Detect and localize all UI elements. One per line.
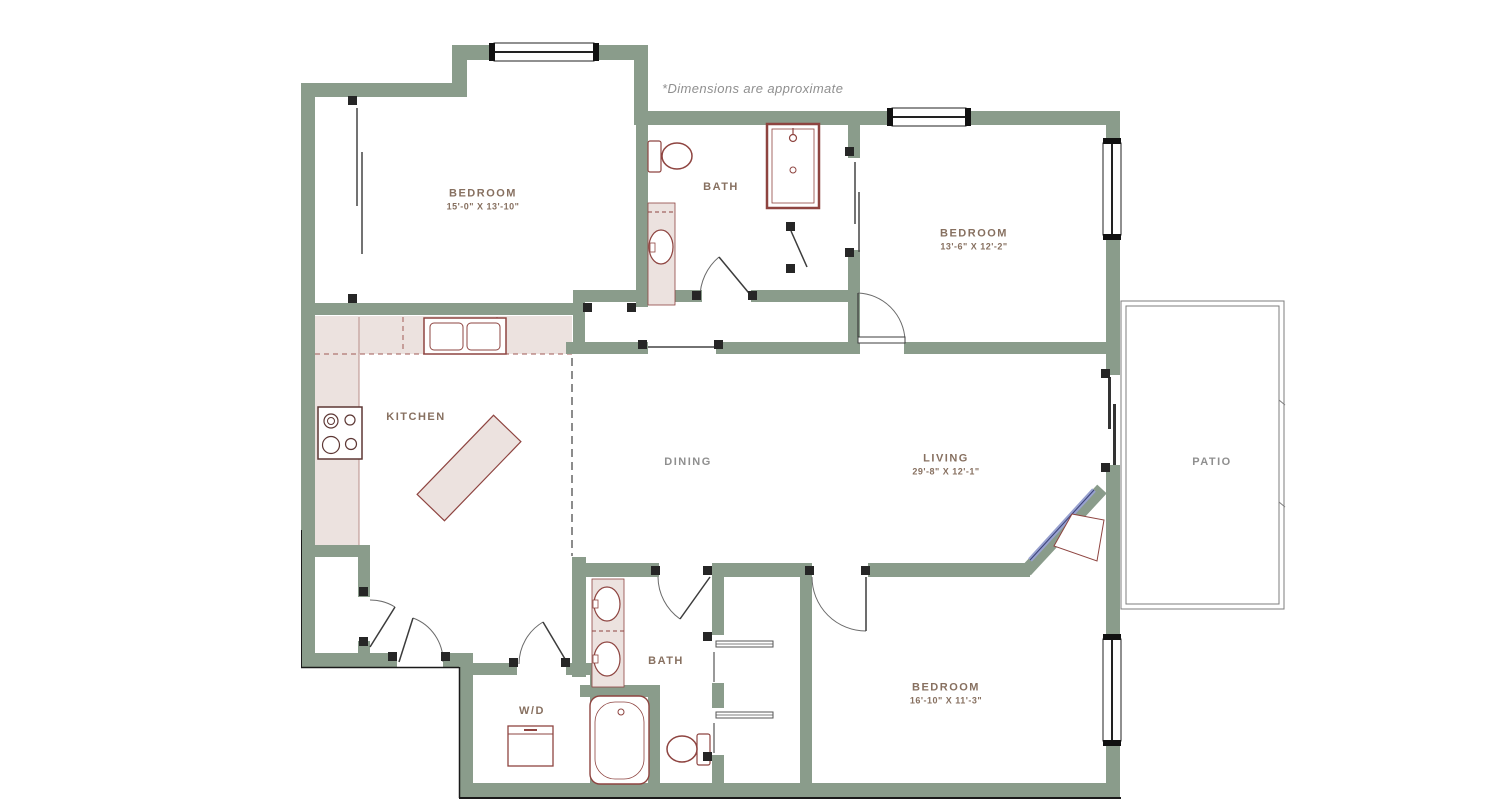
- room-dims: 29'-8" X 12'-1": [912, 466, 979, 477]
- kitchen-island: [417, 415, 521, 521]
- wall-segment: [573, 290, 702, 302]
- stove: [318, 407, 362, 459]
- room-name: KITCHEN: [386, 411, 445, 425]
- closet-shelf: [714, 712, 773, 753]
- room-label-laundry: W/D: [519, 705, 545, 719]
- room-name: DINING: [664, 456, 712, 470]
- door-swing-entry-closet: [370, 600, 395, 647]
- wall-segment: [634, 45, 648, 125]
- wall-segment: [636, 125, 648, 307]
- patio-outline: [1121, 301, 1285, 609]
- wall-segment: [459, 653, 473, 797]
- door-leaf-small: [791, 231, 807, 267]
- wall-segment: [712, 563, 812, 577]
- room-name: PATIO: [1192, 456, 1231, 470]
- room-label-bath-top: BATH: [703, 181, 739, 195]
- wall-segment: [566, 342, 648, 354]
- wall-segment: [648, 685, 660, 797]
- room-label-bedroom-bottom: BEDROOM 16'-10" X 11'-3": [910, 682, 982, 707]
- sink-vanity: [648, 203, 675, 305]
- window: [1103, 138, 1121, 240]
- room-name: LIVING: [912, 453, 979, 467]
- wall-segment: [1106, 465, 1120, 575]
- door-swing-bedroom-right: [858, 293, 905, 343]
- wall-segment: [904, 342, 1106, 354]
- room-name: BEDROOM: [447, 188, 520, 202]
- wall-segment: [712, 577, 724, 635]
- room-name: BEDROOM: [910, 682, 982, 696]
- room-label-dining: DINING: [664, 456, 712, 470]
- room-label-living: LIVING 29'-8" X 12'-1": [912, 453, 979, 478]
- window: [489, 43, 599, 61]
- room-label-kitchen: KITCHEN: [386, 411, 445, 425]
- window: [887, 108, 971, 126]
- washer-dryer: [508, 726, 553, 766]
- closet-slider: [357, 108, 362, 254]
- room-dims: 15'-0" X 13'-10": [447, 201, 520, 212]
- shower: [767, 124, 819, 208]
- wall-segment: [301, 83, 467, 97]
- wall-segment: [868, 563, 1030, 577]
- room-dims: 13'-6" X 12'-2": [940, 241, 1008, 252]
- toilet: [648, 141, 692, 172]
- room-name: BATH: [703, 181, 739, 195]
- room-name: BEDROOM: [940, 228, 1008, 242]
- room-label-bedroom-top-left: BEDROOM 15'-0" X 13'-10": [447, 188, 520, 213]
- wall-segment: [716, 342, 858, 354]
- floor-plan: *Dimensions are approximate BEDROOM 15'-…: [0, 0, 1486, 805]
- door-swing-bath-bottom: [658, 577, 710, 619]
- floor-plan-drawing: [0, 0, 1486, 805]
- wall-segment: [301, 83, 315, 667]
- room-name: W/D: [519, 705, 545, 719]
- wall-segment: [315, 303, 585, 315]
- wall-segment: [575, 563, 659, 577]
- closet-slider: [855, 162, 859, 252]
- wall-segment: [648, 111, 1120, 125]
- double-sink-vanity: [592, 579, 624, 687]
- window: [1103, 634, 1121, 746]
- closet-sliders: [357, 108, 1116, 465]
- wall-segment: [301, 653, 397, 667]
- wall-segment: [712, 683, 724, 708]
- door-swing-bedroom-bottom: [812, 577, 866, 631]
- bathtub: [590, 696, 649, 784]
- wall-segment: [459, 783, 1120, 797]
- wall-segment: [800, 577, 812, 797]
- closet-shelf: [714, 641, 773, 682]
- fixtures: [318, 124, 1104, 784]
- door-swing-bath-top: [700, 257, 753, 298]
- room-name: BATH: [648, 655, 684, 669]
- wall-segment: [712, 755, 724, 797]
- room-label-bedroom-right: BEDROOM 13'-6" X 12'-2": [940, 228, 1008, 253]
- patio-sliding-door: [1108, 377, 1116, 465]
- room-dims: 16'-10" X 11'-3": [910, 695, 982, 706]
- wall-segment: [751, 290, 850, 302]
- dimensions-note: *Dimensions are approximate: [662, 81, 843, 96]
- room-label-patio: PATIO: [1192, 456, 1231, 470]
- door-swing-entry: [399, 618, 443, 662]
- room-label-bath-bottom: BATH: [648, 655, 684, 669]
- door-swing-laundry: [519, 622, 568, 664]
- kitchen-sink: [424, 318, 506, 354]
